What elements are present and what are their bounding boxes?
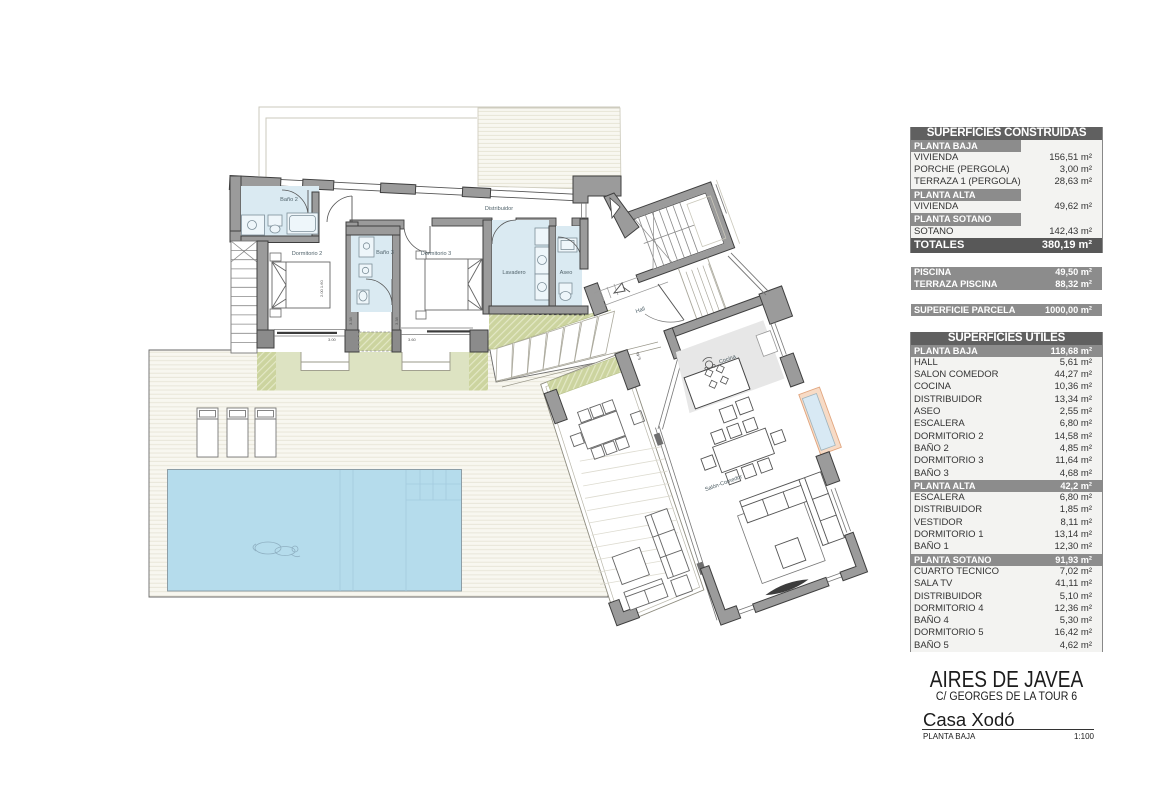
svg-text:Dormitorio 3: Dormitorio 3: [421, 251, 451, 257]
svg-text:Baño 3: Baño 3: [376, 250, 394, 256]
svg-text:Baño 2: Baño 2: [280, 197, 298, 203]
svg-text:3.60: 3.60: [408, 337, 417, 342]
svg-text:Aseo: Aseo: [560, 270, 573, 276]
svg-text:Distribuidor: Distribuidor: [485, 206, 513, 212]
svg-text:3.00: 3.00: [328, 337, 337, 342]
svg-text:Dormitorio 2: Dormitorio 2: [292, 251, 322, 257]
svg-text:2.00 1.60: 2.00 1.60: [319, 280, 324, 297]
svg-text:Lavadero: Lavadero: [502, 270, 525, 276]
svg-text:Hall: Hall: [635, 306, 646, 315]
svg-text:3.38: 3.38: [348, 316, 353, 325]
svg-text:3.38: 3.38: [394, 316, 399, 325]
